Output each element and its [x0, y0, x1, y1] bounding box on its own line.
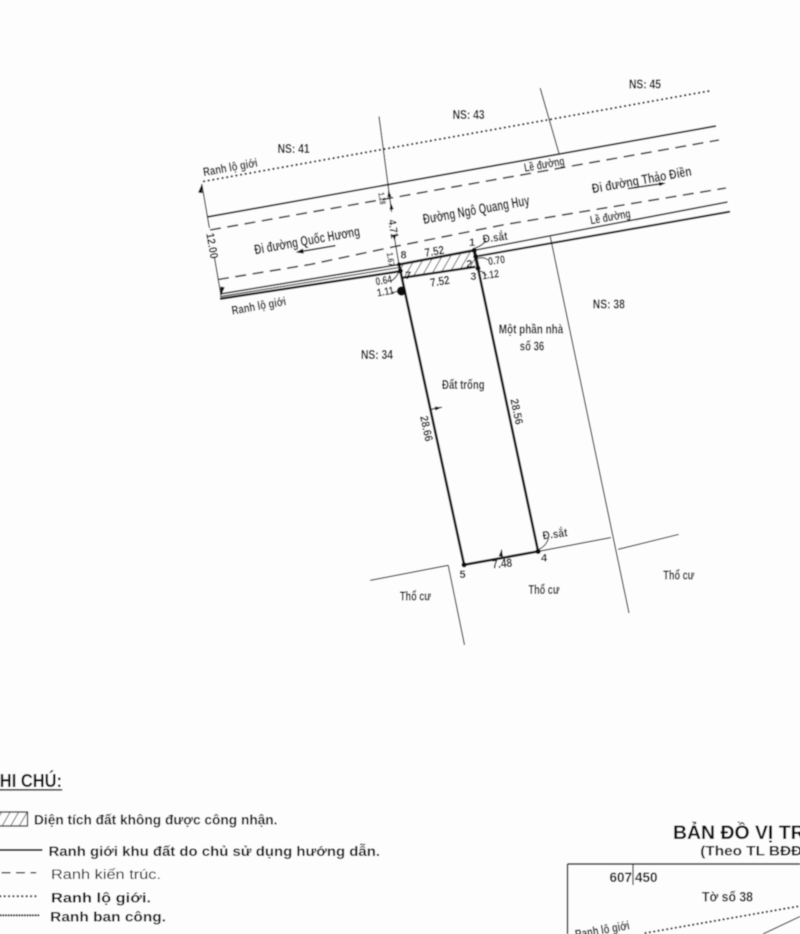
svg-text:Diện tích đất không được công: Diện tích đất không được công nhận.	[34, 813, 278, 828]
svg-text:450: 450	[635, 870, 658, 885]
svg-text:số 36: số 36	[520, 338, 545, 353]
svg-text:2: 2	[466, 259, 472, 271]
svg-text:0.70: 0.70	[487, 254, 506, 268]
svg-text:Tờ số 38: Tờ số 38	[702, 890, 753, 905]
svg-text:BẢN ĐỒ VỊ TRÍ: BẢN ĐỒ VỊ TRÍ	[673, 820, 800, 844]
svg-text:8: 8	[400, 250, 406, 262]
svg-text:GHI CHÚ:: GHI CHÚ:	[0, 770, 62, 791]
svg-text:1.12: 1.12	[481, 268, 500, 282]
svg-text:1: 1	[469, 237, 475, 249]
svg-text:Ranh ban công.: Ranh ban công.	[50, 910, 166, 925]
svg-text:(Theo TL BĐĐC): (Theo TL BĐĐC)	[700, 844, 800, 859]
svg-text:Đất trống: Đất trống	[442, 377, 485, 392]
svg-text:1.28: 1.28	[376, 192, 388, 206]
svg-text:7: 7	[405, 270, 411, 282]
svg-text:607: 607	[609, 870, 632, 885]
svg-text:NS: 41: NS: 41	[278, 141, 310, 156]
svg-text:NS: 38: NS: 38	[593, 297, 625, 312]
svg-text:Thổ cư: Thổ cư	[400, 589, 431, 604]
svg-text:NS: 43: NS: 43	[453, 107, 485, 122]
svg-text:7.48: 7.48	[492, 556, 513, 572]
svg-text:Thổ cư: Thổ cư	[663, 567, 694, 582]
svg-text:Thổ cư: Thổ cư	[529, 582, 560, 597]
svg-text:NS: 45: NS: 45	[629, 77, 661, 92]
svg-text:3: 3	[470, 271, 476, 283]
svg-text:Một phần nhà: Một phần nhà	[499, 322, 564, 337]
svg-text:NS: 34: NS: 34	[361, 347, 394, 362]
svg-text:5: 5	[459, 569, 465, 581]
svg-text:Ranh kiến trúc.: Ranh kiến trúc.	[51, 867, 161, 882]
svg-text:Ranh giới khu đất do chủ sử dụ: Ranh giới khu đất do chủ sử dụng hướng d…	[49, 844, 381, 859]
svg-text:Ranh lộ giới.: Ranh lộ giới.	[51, 891, 151, 906]
svg-text:4: 4	[541, 553, 548, 565]
